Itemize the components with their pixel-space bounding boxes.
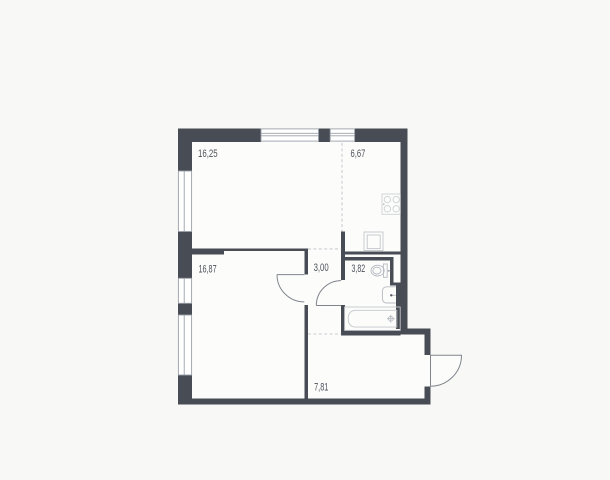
svg-text:3,82: 3,82 — [352, 263, 366, 275]
svg-text:7,81: 7,81 — [314, 382, 328, 394]
svg-text:16,87: 16,87 — [199, 263, 217, 275]
svg-text:6,67: 6,67 — [351, 148, 366, 160]
svg-text:3,00: 3,00 — [314, 262, 329, 274]
svg-text:16,25: 16,25 — [198, 148, 218, 160]
